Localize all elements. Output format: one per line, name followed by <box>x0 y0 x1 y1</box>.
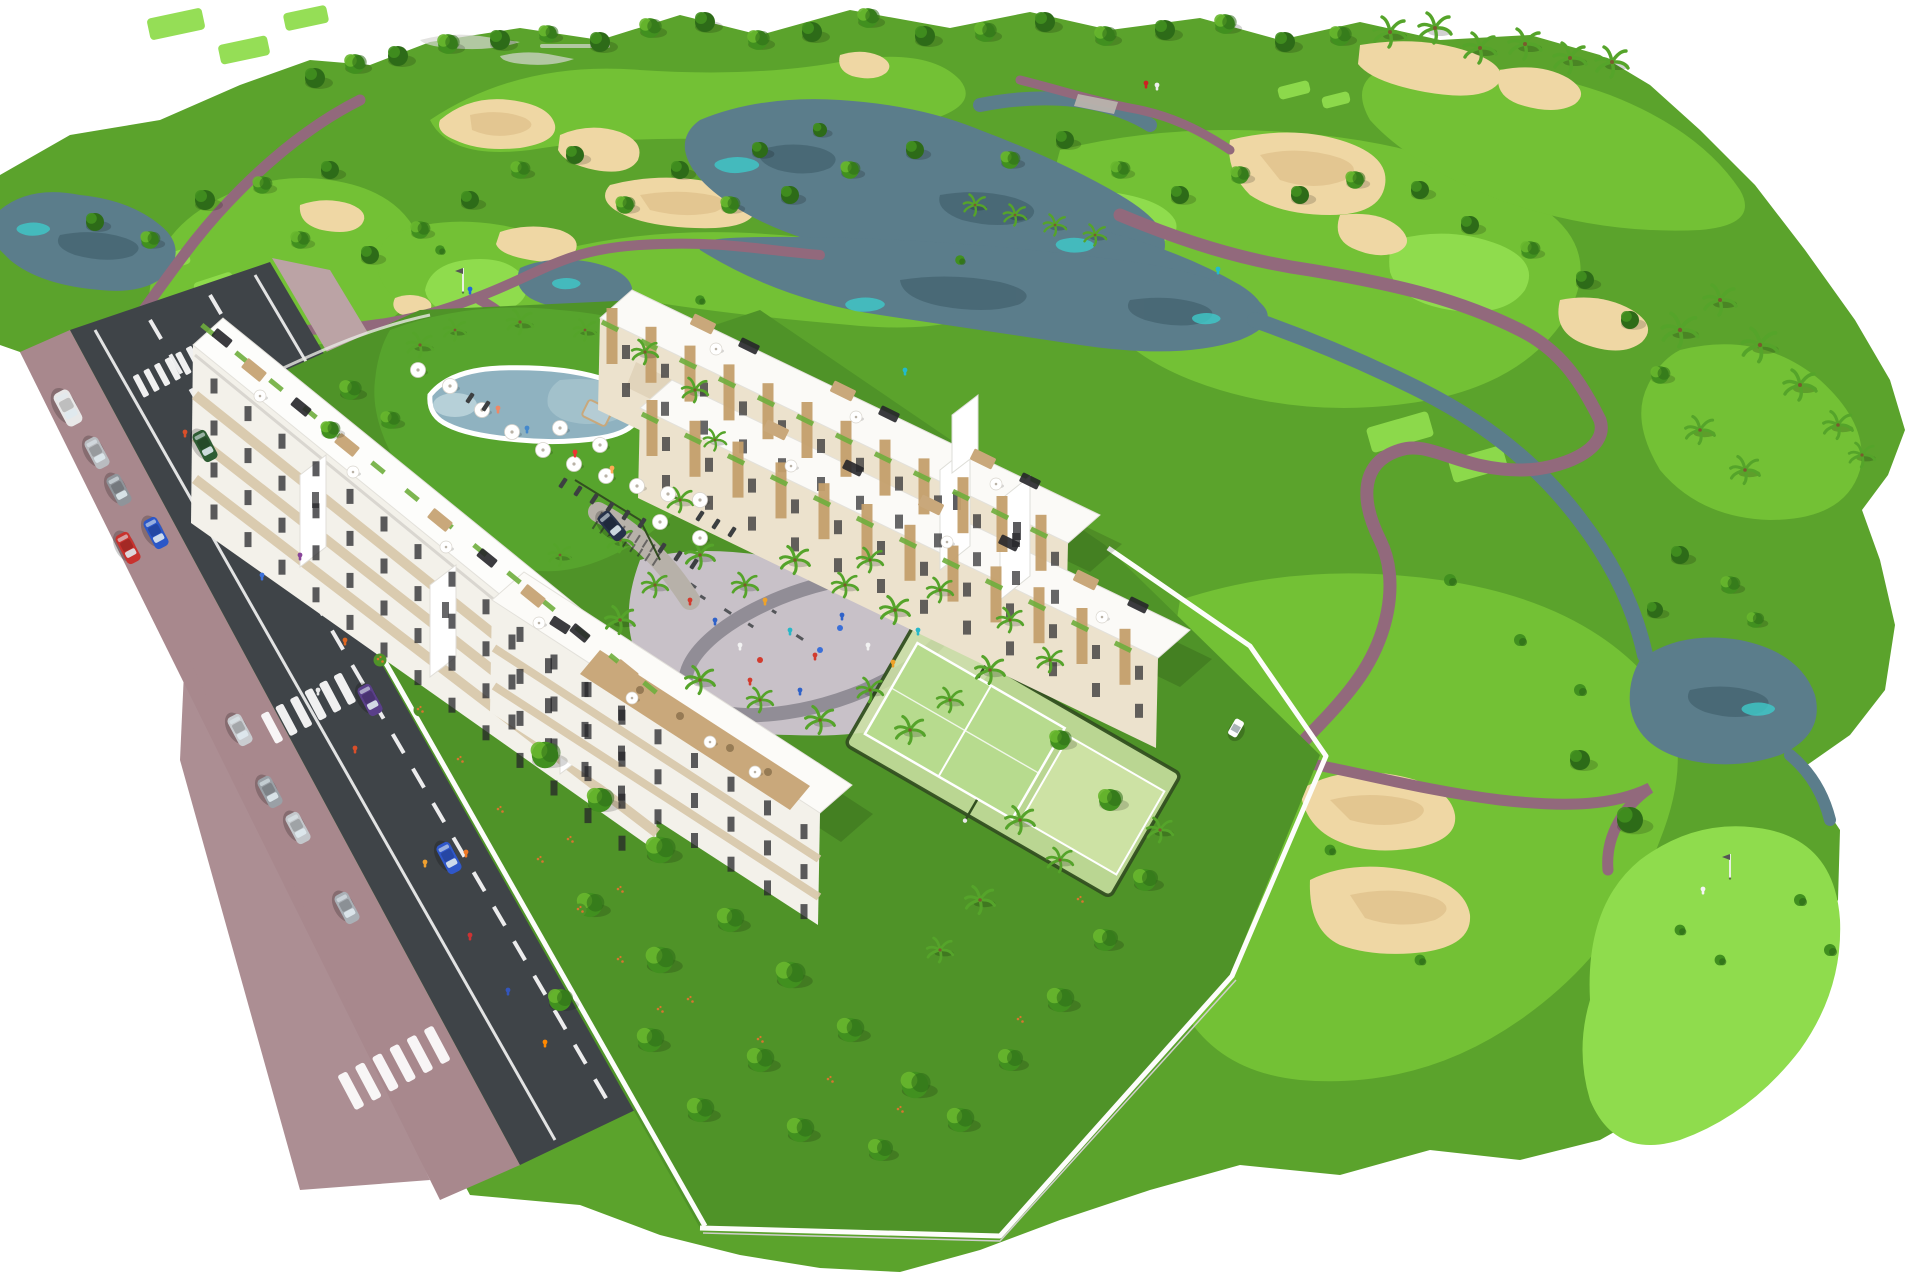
window <box>211 505 218 520</box>
flowering-bush <box>894 1104 907 1117</box>
flowering-bush <box>574 904 587 917</box>
window <box>313 545 320 560</box>
facade-detail <box>802 402 813 458</box>
window <box>791 499 799 513</box>
facade-detail <box>776 462 787 518</box>
facade-detail <box>819 483 830 539</box>
window <box>705 458 713 472</box>
window <box>920 600 928 614</box>
window <box>381 601 388 616</box>
window <box>449 698 456 713</box>
window <box>509 675 516 690</box>
facade-detail <box>991 566 1002 622</box>
window <box>313 503 320 518</box>
window <box>347 489 354 504</box>
tee-box <box>146 7 205 40</box>
window <box>245 532 252 547</box>
window <box>764 880 771 895</box>
window <box>545 658 552 673</box>
masterplan-render: Aerial 3D render of a golf-resort reside… <box>0 0 1920 1280</box>
window <box>801 824 808 839</box>
window <box>963 621 971 635</box>
tree <box>1214 14 1242 34</box>
window <box>313 587 320 602</box>
window <box>313 461 320 476</box>
window <box>279 518 286 533</box>
window <box>1049 624 1057 638</box>
window <box>834 520 842 534</box>
window <box>415 670 422 685</box>
window <box>381 517 388 532</box>
window <box>655 729 662 744</box>
window <box>415 586 422 601</box>
window <box>877 579 885 593</box>
window <box>347 573 354 588</box>
window <box>347 531 354 546</box>
flowering-bush <box>614 954 627 967</box>
window <box>279 476 286 491</box>
flowering-bush <box>614 884 627 897</box>
window <box>483 683 490 698</box>
window <box>764 840 771 855</box>
window <box>728 817 735 832</box>
window <box>920 562 928 576</box>
window <box>509 635 516 650</box>
window <box>551 781 558 796</box>
window <box>834 558 842 572</box>
window <box>655 809 662 824</box>
flowering-bush <box>564 834 577 847</box>
window <box>517 669 524 684</box>
window <box>801 904 808 919</box>
window <box>973 552 981 566</box>
facade-detail <box>607 308 618 364</box>
tree <box>344 54 372 74</box>
window <box>483 641 490 656</box>
window <box>728 857 735 872</box>
tee-box <box>283 5 330 32</box>
facade-detail <box>1120 629 1131 685</box>
window <box>1092 683 1100 697</box>
window <box>415 544 422 559</box>
window <box>1051 552 1059 566</box>
window <box>483 599 490 614</box>
window <box>691 793 698 808</box>
window <box>700 421 708 435</box>
window <box>764 800 771 815</box>
window <box>1006 641 1014 655</box>
window <box>449 656 456 671</box>
window <box>211 421 218 436</box>
window <box>245 406 252 421</box>
window <box>691 753 698 768</box>
window <box>545 698 552 713</box>
window <box>661 402 669 416</box>
window <box>963 583 971 597</box>
facade-detail <box>733 442 744 498</box>
window <box>211 463 218 478</box>
window <box>347 615 354 630</box>
window <box>449 614 456 629</box>
window <box>1092 645 1100 659</box>
window <box>728 777 735 792</box>
flowering-bush <box>1074 894 1087 907</box>
window <box>1135 666 1143 680</box>
flowering-bush <box>684 994 697 1007</box>
window <box>279 434 286 449</box>
facade-detail <box>880 440 891 496</box>
window <box>655 769 662 784</box>
facade-detail <box>958 477 969 533</box>
window <box>622 383 630 397</box>
flowering-bush <box>454 754 467 767</box>
window <box>211 379 218 394</box>
window <box>582 682 589 697</box>
window <box>483 725 490 740</box>
tree <box>695 12 723 33</box>
window <box>1135 704 1143 718</box>
window <box>895 477 903 491</box>
flowering-bush <box>754 1034 767 1047</box>
facade-detail <box>724 364 735 420</box>
window <box>1012 571 1020 585</box>
window <box>582 762 589 777</box>
window <box>618 706 625 721</box>
flowering-bush <box>374 654 387 667</box>
flowering-bush <box>1014 1014 1027 1027</box>
window <box>517 753 524 768</box>
render-canvas: Aerial 3D render of a golf-resort reside… <box>0 0 1920 1280</box>
flowering-bush <box>414 704 427 717</box>
window <box>801 864 808 879</box>
window <box>748 479 756 493</box>
tee-box <box>217 35 270 65</box>
facade-detail <box>690 421 701 477</box>
window <box>691 833 698 848</box>
facade-detail <box>647 400 658 456</box>
window <box>415 628 422 643</box>
window <box>895 515 903 529</box>
window <box>582 722 589 737</box>
facade-detail <box>1077 608 1088 664</box>
window <box>739 401 747 415</box>
window <box>619 836 626 851</box>
flowering-bush <box>654 1004 667 1017</box>
flowering-bush <box>494 804 507 817</box>
window <box>517 627 524 642</box>
window <box>509 715 516 730</box>
window <box>381 559 388 574</box>
window <box>661 364 669 378</box>
window <box>449 572 456 587</box>
window <box>934 533 942 547</box>
window <box>618 786 625 801</box>
facade-detail <box>1036 515 1047 571</box>
window <box>618 746 625 761</box>
facade-detail <box>1034 587 1045 643</box>
window <box>245 448 252 463</box>
flowering-bush <box>534 854 547 867</box>
window <box>1051 590 1059 604</box>
window <box>748 517 756 531</box>
facade-detail <box>905 525 916 581</box>
window <box>279 560 286 575</box>
window <box>245 490 252 505</box>
flowering-bush <box>824 1074 837 1087</box>
window <box>517 711 524 726</box>
window <box>817 439 825 453</box>
window <box>973 514 981 528</box>
window <box>585 808 592 823</box>
window <box>622 345 630 359</box>
window <box>662 437 670 451</box>
